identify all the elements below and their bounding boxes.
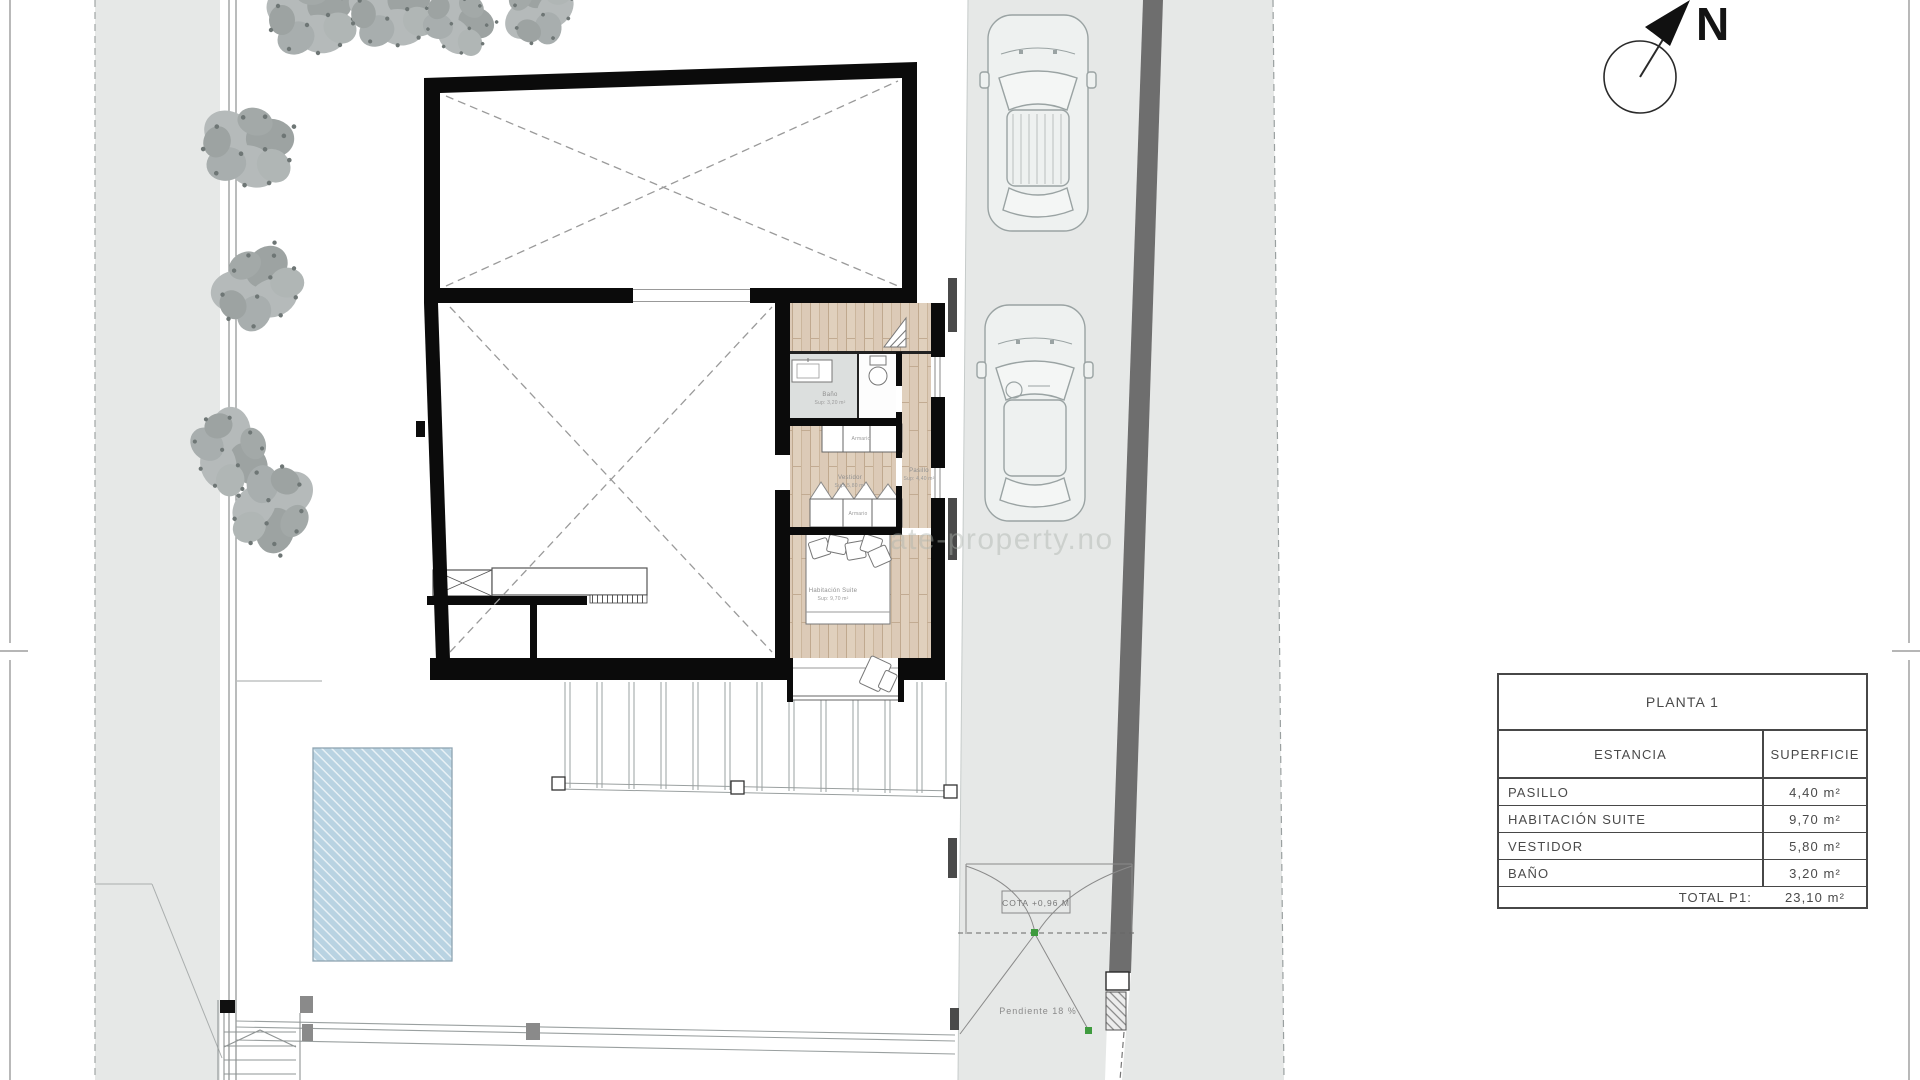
tree-icon bbox=[489, 0, 592, 64]
bottom-fence bbox=[236, 1021, 955, 1054]
hallway-area-label: Sup: 4,40 m² bbox=[903, 476, 934, 482]
area-table: PLANTA 1 ESTANCIA SUPERFICIE PASILLO 4,4… bbox=[1497, 673, 1868, 909]
table-header-area: SUPERFICIE bbox=[1764, 731, 1866, 777]
bed bbox=[806, 534, 892, 624]
table-row: BAÑO 3,20 m² bbox=[1499, 860, 1866, 887]
room-name: PASILLO bbox=[1499, 779, 1764, 805]
room-area: 4,40 m² bbox=[1764, 779, 1866, 805]
wardrobe-bottom-label: Armario bbox=[849, 511, 868, 517]
room-name: VESTIDOR bbox=[1499, 833, 1764, 859]
slope-label: Pendiente 18 % bbox=[999, 1006, 1077, 1016]
void-cross-upper bbox=[446, 81, 898, 286]
north-label: N bbox=[1696, 0, 1729, 50]
table-row: PASILLO 4,40 m² bbox=[1499, 779, 1866, 806]
suite-area-label: Sup: 9,70 m² bbox=[817, 596, 848, 602]
car-2-icon bbox=[977, 305, 1093, 521]
table-row: HABITACIÓN SUITE 9,70 m² bbox=[1499, 806, 1866, 833]
table-total-row: TOTAL P1: 23,10 m² bbox=[1499, 887, 1866, 907]
gate-cota-label: COTA +0,96 M bbox=[1002, 898, 1070, 908]
pool bbox=[313, 748, 452, 961]
terrace bbox=[787, 655, 904, 702]
tree-icon bbox=[260, 0, 362, 61]
bathroom bbox=[790, 354, 896, 418]
room-area: 5,80 m² bbox=[1764, 833, 1866, 859]
table-header-row: ESTANCIA SUPERFICIE bbox=[1499, 731, 1866, 779]
table-header-room: ESTANCIA bbox=[1499, 731, 1764, 777]
total-value: 23,10 m² bbox=[1764, 890, 1866, 905]
room-name: BAÑO bbox=[1499, 860, 1764, 886]
wardrobe-top-label: Armario bbox=[852, 436, 871, 442]
watermark: ate-property.no bbox=[890, 523, 1114, 556]
dressing-label: Vestidor bbox=[838, 475, 862, 481]
bathroom-label: Baño bbox=[822, 392, 838, 398]
dressing-area-label: Sup: 5,80 m² bbox=[834, 483, 865, 489]
level-marker-green bbox=[1031, 929, 1038, 936]
car-1-icon bbox=[980, 15, 1096, 231]
drawing-sheet: COTA +0,96 M Pendiente 18 % Baño Sup: 3,… bbox=[0, 0, 1920, 1080]
floor-plan-drawing: COTA +0,96 M Pendiente 18 % Baño Sup: 3,… bbox=[0, 0, 1920, 1080]
hallway-label: Pasillo bbox=[909, 468, 929, 474]
vanity-sink bbox=[792, 358, 832, 382]
bathroom-area-label: Sup: 3,20 m² bbox=[814, 400, 845, 406]
left-boundary-strip bbox=[95, 0, 222, 1080]
entry-stairs bbox=[218, 996, 313, 1080]
level-marker-green bbox=[1085, 1027, 1092, 1034]
room-name: HABITACIÓN SUITE bbox=[1499, 806, 1764, 832]
room-area: 9,70 m² bbox=[1764, 806, 1866, 832]
room-area: 3,20 m² bbox=[1764, 860, 1866, 886]
total-label: TOTAL P1: bbox=[1499, 890, 1764, 905]
north-compass-icon: N bbox=[1604, 0, 1729, 113]
suite-label: Habitación Suite bbox=[809, 588, 858, 594]
toilet bbox=[869, 356, 887, 385]
table-row: VESTIDOR 5,80 m² bbox=[1499, 833, 1866, 860]
table-title: PLANTA 1 bbox=[1499, 675, 1866, 731]
